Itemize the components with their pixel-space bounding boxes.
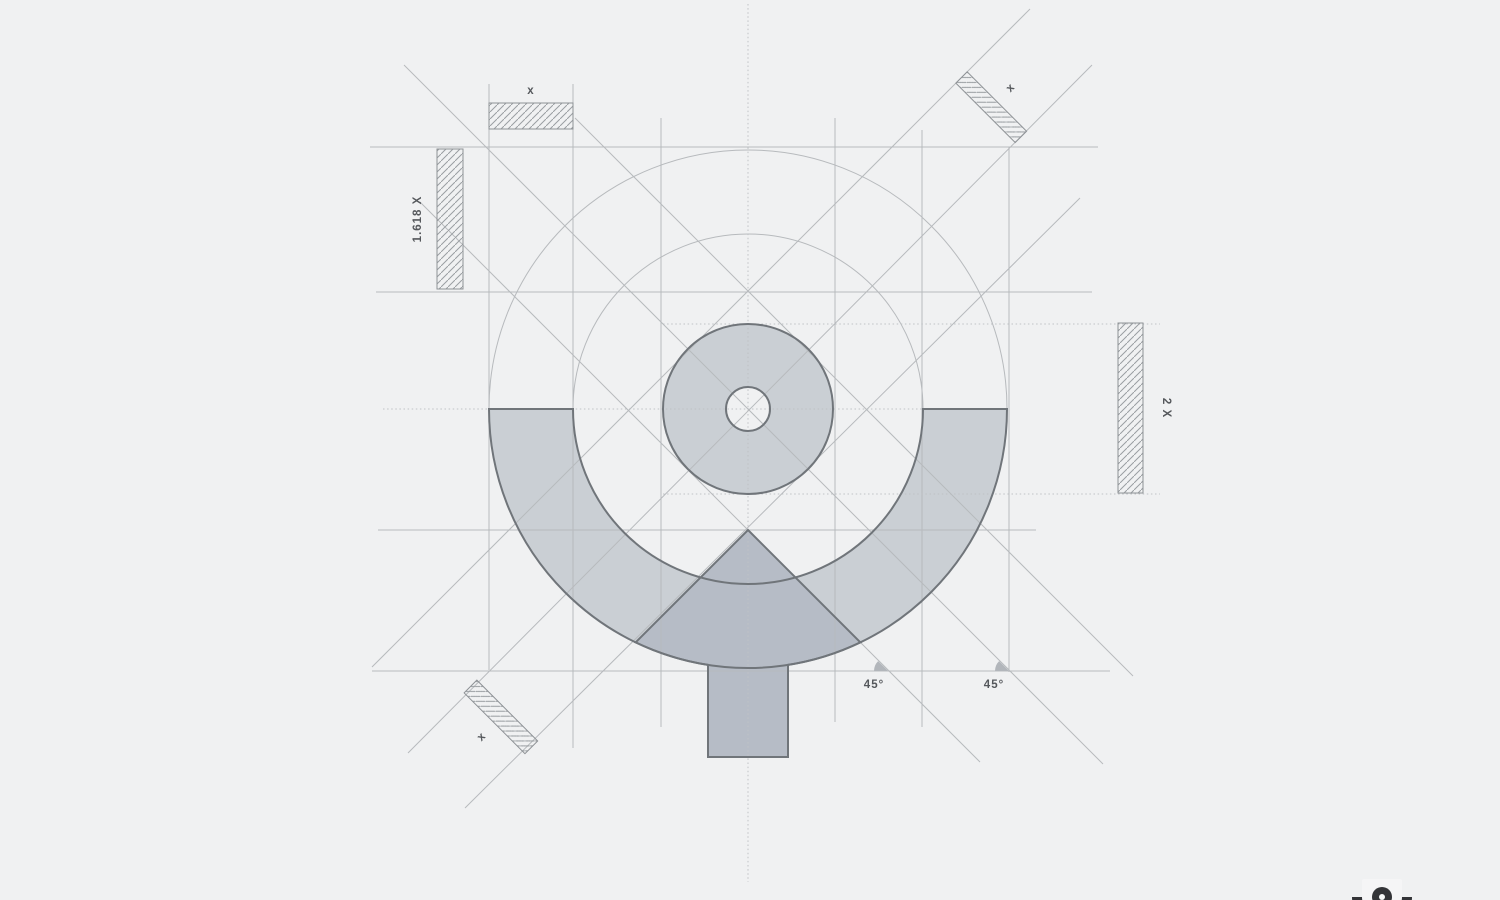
angle-markers [874, 661, 1009, 671]
logo-mark-fills [489, 324, 1007, 757]
construction-drawing: x 1.618 X 2 X x x 45° 45° [0, 0, 1500, 900]
label-angle-right: 45° [984, 679, 1004, 691]
label-angle-left: 45° [864, 679, 884, 691]
measure-bar-diagonal-bottom-left [464, 680, 538, 754]
measure-bar-left-height [437, 149, 463, 289]
label-diag-top-right: x [1004, 81, 1018, 95]
logo-construction-canvas: x 1.618 X 2 X x x 45° 45° [0, 0, 1500, 900]
label-diag-bottom-left: x [475, 730, 489, 744]
brand-mini-logo [1352, 879, 1412, 900]
label-left-height: 1.618 X [412, 196, 424, 243]
brand-mini-donut-hole [1379, 894, 1385, 900]
measure-bar-right-height [1118, 323, 1143, 493]
label-right-height: 2 X [1160, 398, 1172, 418]
measure-bar-top-width [489, 103, 573, 129]
label-top-width: x [527, 85, 534, 97]
measure-bar-diagonal-top-right [956, 72, 1027, 143]
